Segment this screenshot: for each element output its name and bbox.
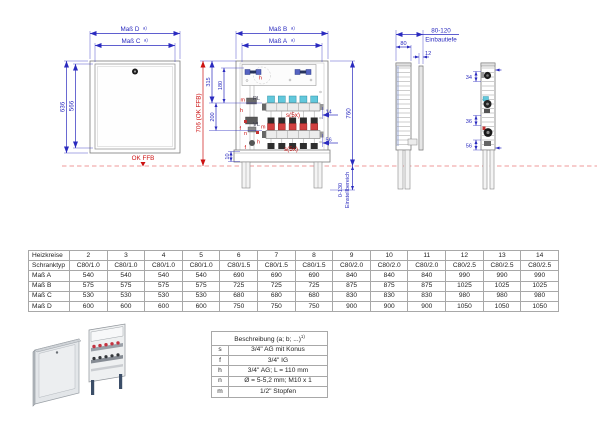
position-label-m: m	[241, 98, 246, 104]
side-leg	[398, 150, 403, 189]
valve-body	[300, 71, 306, 74]
legend-desc: Ø = 5-5,2 mm; M10 x 1	[229, 376, 328, 386]
manifold-end-cap	[262, 131, 266, 138]
value-cell: 980	[446, 291, 484, 301]
top-compartment	[242, 65, 316, 86]
thumb-lock	[56, 351, 58, 353]
value-cell: 840	[408, 271, 446, 281]
legend-key: h	[212, 366, 229, 376]
row-label-cell: Maß D	[29, 302, 70, 312]
value-cell: 900	[408, 302, 446, 312]
value-cell: 750	[258, 302, 296, 312]
legend-key: n	[212, 376, 229, 386]
dim-mass-d-footnote: a)	[143, 26, 147, 31]
section-leg	[490, 150, 494, 189]
value-cell: 9	[333, 251, 371, 261]
row-label-cell: Heizkreise	[29, 251, 70, 261]
value-cell: 750	[220, 302, 258, 312]
table-row: Heizkreise234567891011121314	[29, 251, 559, 261]
value-cell: 540	[182, 271, 220, 281]
dim-mass-d-label: Maß D	[121, 26, 140, 33]
legend-desc: 3/4" AG mit Konus	[229, 345, 328, 355]
closed-cabinet-thumb	[33, 339, 81, 406]
value-cell: 875	[370, 281, 408, 291]
table-row: Maß C53053053053068068068083083083098098…	[29, 291, 559, 301]
legend-row: s 3/4" AG mit Konus	[212, 345, 328, 355]
value-cell: C80/1.0	[182, 261, 220, 271]
value-cell: 990	[483, 271, 521, 281]
manifold-end-cap	[262, 104, 266, 111]
value-cell: 575	[182, 281, 220, 291]
value-cell: 840	[333, 271, 371, 281]
value-cell: 11	[408, 251, 446, 261]
value-cell: C80/1.0	[107, 261, 145, 271]
open-cabinet-thumb	[89, 324, 125, 395]
open-view: h RL s(5x)	[196, 26, 356, 209]
value-cell: 12	[446, 251, 484, 261]
value-cell: C80/2.5	[521, 261, 559, 271]
value-cell: 6	[220, 251, 258, 261]
value-cell: C80/2.0	[333, 261, 371, 271]
dim-12-label: 12	[425, 51, 431, 57]
value-cell: 530	[70, 291, 108, 301]
dim-34-label: 34	[466, 75, 472, 81]
valve-count-label-return: s(5x)	[286, 112, 300, 119]
value-cell: 680	[295, 291, 333, 301]
side-leg	[405, 150, 410, 189]
value-cell: 5	[182, 251, 220, 261]
thumb-leg	[119, 374, 122, 389]
legend-desc: 3/4" IG	[229, 356, 328, 366]
fitting-stub	[484, 141, 491, 146]
value-cell: 7	[258, 251, 296, 261]
depth-range-label: 80-120	[431, 28, 451, 35]
value-cell: 900	[333, 302, 371, 312]
dim-636-label: 636	[60, 101, 67, 112]
legend-row: f 3/4" IG	[212, 356, 328, 366]
position-label-h: h	[259, 76, 262, 82]
value-cell: 980	[483, 291, 521, 301]
legend-key: m	[212, 387, 229, 397]
value-cell: 530	[182, 291, 220, 301]
value-cell: 13	[483, 251, 521, 261]
value-cell: 10	[370, 251, 408, 261]
ok-ffb-label: OK FFB	[132, 155, 155, 162]
fitting-stub	[484, 109, 490, 113]
value-cell: C80/1.5	[220, 261, 258, 271]
row-label-cell: Maß B	[29, 281, 70, 291]
value-cell: 1050	[521, 302, 559, 312]
value-cell: 14	[521, 251, 559, 261]
value-cell: 575	[145, 281, 183, 291]
technical-drawing: Maß D a) Maß C a) 636 566 OK FFB	[0, 0, 600, 245]
section-view: 34 36 56	[466, 63, 502, 189]
dim-10-label: 10	[225, 153, 231, 159]
valve-handwheel	[256, 70, 261, 75]
value-cell: C80/2.0	[370, 261, 408, 271]
dim-80-label: 80	[400, 41, 406, 47]
value-cell: 1025	[483, 281, 521, 291]
legend-key: f	[212, 356, 229, 366]
legend-header-row: Beschreibung (a; b; ...)1)	[212, 332, 328, 346]
depth-caption-label: Einbautiefe	[425, 37, 457, 44]
value-cell: 600	[70, 302, 108, 312]
position-label-m: m	[261, 125, 266, 131]
dim-566-label: 566	[69, 100, 76, 111]
position-label-h: h	[257, 140, 260, 146]
dim-mass-a-footnote: a)	[291, 38, 295, 43]
dim-760-label: 760	[346, 108, 353, 119]
value-cell: 750	[295, 302, 333, 312]
dim-mass-b-label: Maß B	[269, 26, 288, 33]
value-cell: 830	[370, 291, 408, 301]
valve-count-label-supply: s(5x)	[284, 146, 298, 153]
dim-200-label: 200	[210, 112, 216, 121]
value-cell: 600	[145, 302, 183, 312]
manifold-end-cap	[320, 132, 324, 138]
red-cap	[244, 120, 247, 123]
row-label-cell: Maß C	[29, 291, 70, 301]
row-label-cell: Schranktyp	[29, 261, 70, 271]
valve-body	[250, 71, 256, 74]
value-cell: 600	[107, 302, 145, 312]
legend-row: m 1/2" Stopfen	[212, 387, 328, 397]
value-cell: 2	[70, 251, 108, 261]
value-cell: C80/2.5	[446, 261, 484, 271]
dim-36-label: 36	[466, 119, 472, 125]
value-cell: 530	[107, 291, 145, 301]
legend-desc: 3/4" AG; L = 110 mm	[229, 366, 328, 376]
dim-56-side-label: 56	[466, 144, 472, 150]
value-cell: 1050	[483, 302, 521, 312]
dim-mass-a-label: Maß A	[269, 38, 288, 45]
value-cell: C80/2.0	[408, 261, 446, 271]
dim-14-label: 14	[326, 110, 332, 116]
dim-180-label: 180	[218, 81, 224, 90]
dim-mass-c-label: Maß C	[122, 38, 141, 45]
return-line-label: RL	[253, 96, 260, 102]
supply-line-label: VL	[253, 122, 260, 128]
legend-title: Beschreibung (a; b; ...)1)	[212, 332, 328, 346]
value-cell: 830	[333, 291, 371, 301]
supply-manifold-bar	[266, 131, 320, 139]
return-manifold-bar	[266, 103, 320, 111]
legend-table: Beschreibung (a; b; ...)1) s 3/4" AG mit…	[211, 331, 328, 398]
value-cell: 980	[521, 291, 559, 301]
fitting-stub	[482, 72, 485, 78]
front-view: Maß D a) Maß C a) 636 566 OK FFB	[60, 26, 181, 167]
position-label-h: h	[240, 108, 243, 114]
value-cell: 690	[295, 271, 333, 281]
legend-desc: 1/2" Stopfen	[229, 387, 328, 397]
value-cell: 3	[107, 251, 145, 261]
value-cell: 8	[295, 251, 333, 261]
section-leg	[483, 150, 487, 189]
value-cell: 875	[333, 281, 371, 291]
dim-315-label: 315	[206, 77, 212, 86]
value-cell: 680	[220, 291, 258, 301]
value-cell: 600	[182, 302, 220, 312]
door-lock-slot	[134, 70, 136, 72]
value-cell: 725	[220, 281, 258, 291]
value-cell: 990	[446, 271, 484, 281]
dim-706-label: 706 (OK FFB)	[196, 93, 203, 132]
cabinet-door	[95, 64, 175, 149]
mount-bracket	[408, 139, 417, 145]
table-row: SchranktypC80/1.0C80/1.0C80/1.0C80/1.0C8…	[29, 261, 559, 271]
dim-mass-b-footnote: a)	[291, 26, 295, 31]
red-cap	[256, 131, 259, 134]
value-cell: 575	[70, 281, 108, 291]
value-cell: C80/1.5	[295, 261, 333, 271]
value-cell: 4	[145, 251, 183, 261]
value-cell: 725	[258, 281, 296, 291]
rail-slot-strip	[397, 66, 400, 146]
value-cell: 690	[258, 271, 296, 281]
dim-56-label: 56	[326, 138, 332, 144]
value-cell: 725	[295, 281, 333, 291]
valve-handwheel	[295, 70, 300, 75]
value-cell: 1050	[446, 302, 484, 312]
manifold-end-cap	[320, 104, 324, 110]
value-cell: 840	[370, 271, 408, 281]
dimensions-table: Heizkreise234567891011121314SchranktypC8…	[28, 250, 559, 312]
valve-handwheel	[245, 70, 250, 75]
side-view: 80-120 Einbautiefe 80 12	[396, 28, 459, 190]
value-cell: 530	[145, 291, 183, 301]
row-label-cell: Maß A	[29, 271, 70, 281]
value-cell: 990	[521, 271, 559, 281]
value-cell: C80/1.5	[258, 261, 296, 271]
value-cell: 690	[220, 271, 258, 281]
value-cell: C80/1.0	[145, 261, 183, 271]
pipe-elbow	[249, 140, 255, 146]
table-row: Maß D60060060060075075075090090090010501…	[29, 302, 559, 312]
dim-mass-c-footnote: a)	[144, 38, 148, 43]
value-cell: 540	[145, 271, 183, 281]
legend-key: s	[212, 345, 229, 355]
position-label-n: n	[244, 131, 247, 137]
value-cell: 1025	[446, 281, 484, 291]
value-cell: 680	[258, 291, 296, 301]
value-cell: 540	[70, 271, 108, 281]
value-cell: 575	[107, 281, 145, 291]
product-thumbnails	[25, 322, 155, 417]
adjust-range-caption: Einstellbereich	[345, 172, 351, 208]
value-cell: 875	[408, 281, 446, 291]
thumb-leg	[91, 380, 94, 395]
valve-handwheel	[306, 70, 311, 75]
legend-row: h 3/4" AG; L = 110 mm	[212, 366, 328, 376]
table-row: Maß A54054054054069069069084084084099099…	[29, 271, 559, 281]
value-cell: 1025	[521, 281, 559, 291]
value-cell: 900	[370, 302, 408, 312]
legend-title-footnote: 1)	[301, 334, 305, 339]
value-cell: 830	[408, 291, 446, 301]
table-row: Maß B57557557557572572572587587587510251…	[29, 281, 559, 291]
adjust-range-label: 0-130	[338, 183, 344, 197]
value-cell: 540	[107, 271, 145, 281]
bottom-tray	[234, 150, 330, 162]
legend-row: n Ø = 5-5,2 mm; M10 x 1	[212, 376, 328, 386]
value-cell: C80/1.0	[70, 261, 108, 271]
value-cell: C80/2.5	[483, 261, 521, 271]
